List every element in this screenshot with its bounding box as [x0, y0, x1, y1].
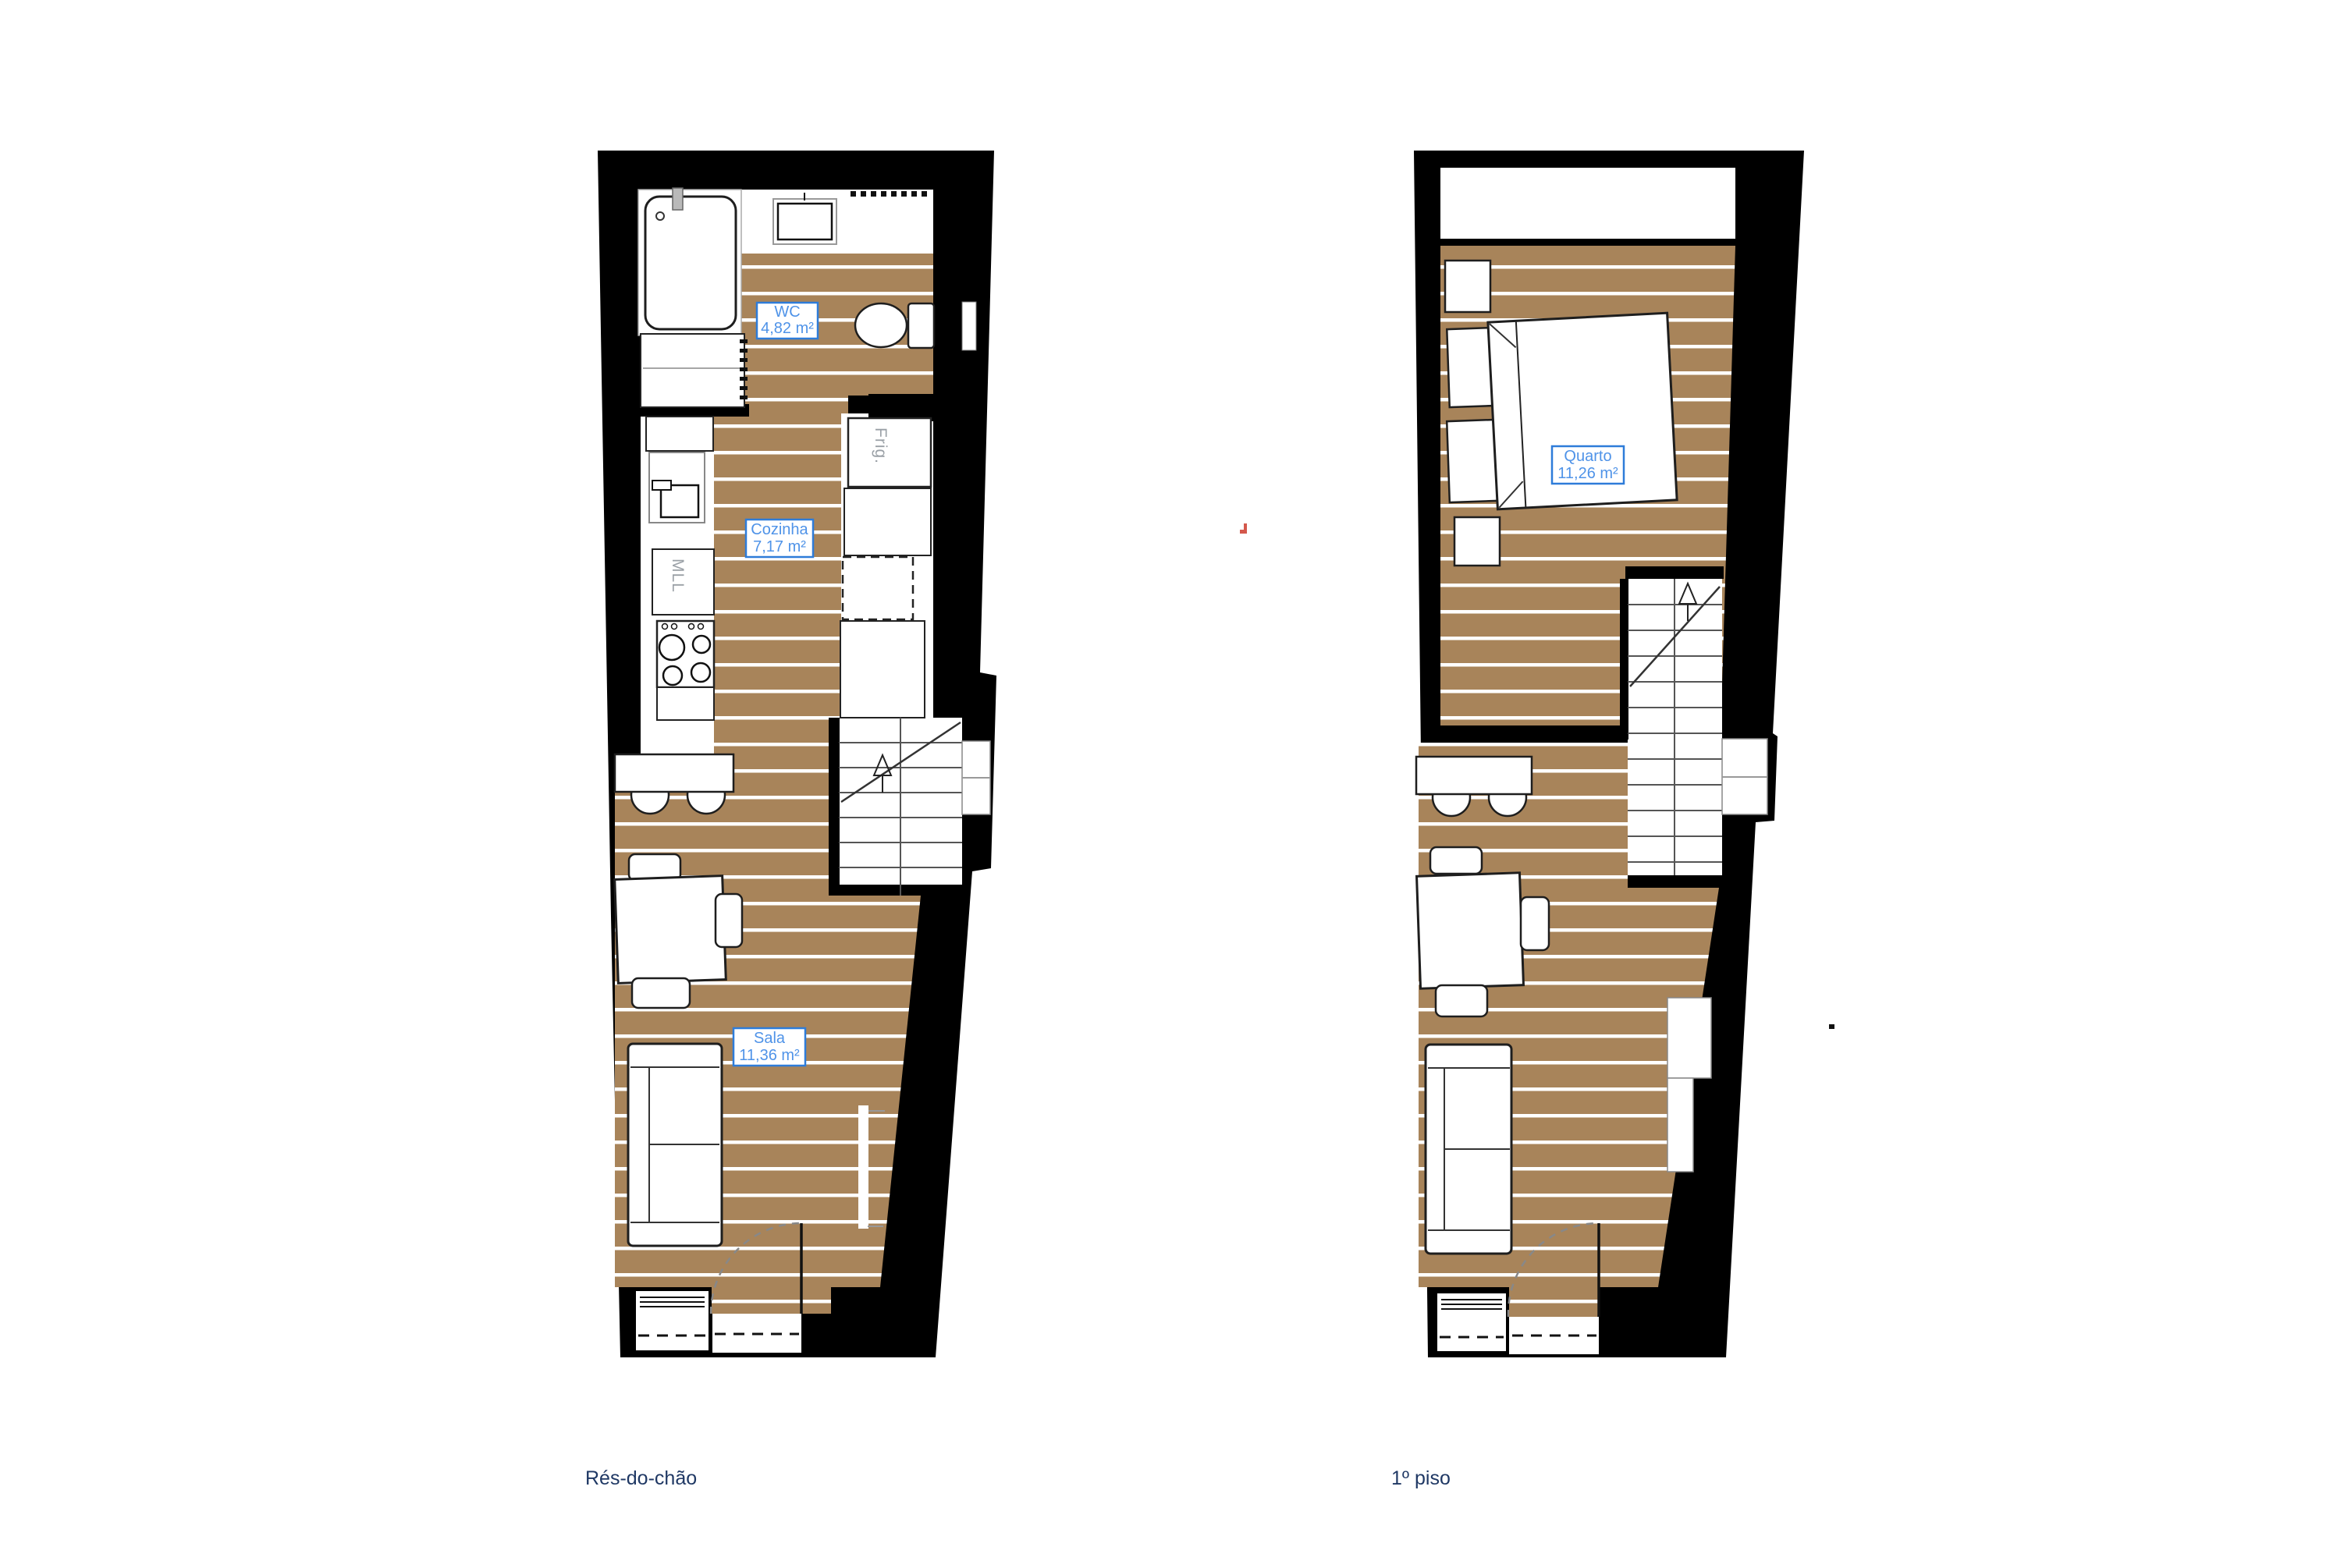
- sofa: [1426, 1045, 1511, 1254]
- stairwell-zone: [829, 718, 962, 896]
- cozinha-room-label: Cozinha 7,17 m²: [746, 520, 813, 557]
- kitchen-counter: [646, 417, 713, 451]
- under-stair-wall: [1628, 875, 1722, 888]
- door-threshold: [1509, 1317, 1599, 1354]
- wc-room-area: 4,82 m²: [761, 320, 814, 337]
- ground-floor-plan: MLL Frig.: [598, 151, 996, 1357]
- small-black-mark: [1829, 1024, 1834, 1029]
- stair-side-wall: [829, 718, 840, 896]
- bedroom-divider-wall: [1440, 725, 1625, 743]
- stair-landing: [962, 741, 990, 814]
- red-annotation-mark: [1240, 523, 1247, 534]
- quarto-room-label: Quarto 11,26 m²: [1552, 446, 1624, 484]
- kitchen-counter-right-low: [840, 621, 925, 718]
- dining-chair: [1430, 847, 1482, 874]
- first-floor-caption: 1º piso: [1391, 1467, 1451, 1489]
- wc-room-name: WC: [774, 303, 800, 321]
- stair-side-wall: [1620, 579, 1628, 740]
- dining-chair: [716, 894, 742, 947]
- washing-machine-label: MLL: [669, 559, 687, 593]
- washbasin: [773, 193, 836, 244]
- dining-chair: [1521, 897, 1549, 950]
- kitchen-sink: [649, 452, 705, 523]
- dining-chair: [632, 978, 690, 1008]
- washing-machine: MLL: [652, 549, 714, 615]
- dining-chair: [1436, 985, 1487, 1016]
- kitchen-counter-right: [844, 488, 931, 555]
- sala-room-area: 11,36 m²: [739, 1047, 800, 1064]
- stair-landing: [1722, 739, 1767, 814]
- bathtub: [638, 188, 741, 335]
- window-threshold: [636, 1291, 709, 1350]
- balcony-edge-line: [1440, 239, 1735, 246]
- first-floor-plan: Quarto 11,26 m²: [1414, 151, 1804, 1357]
- bedroom-cabinet: [1445, 261, 1490, 312]
- sala-room-label: Sala 11,36 m²: [733, 1028, 805, 1066]
- cozinha-room-area: 7,17 m²: [753, 538, 806, 555]
- sala-room-name: Sala: [754, 1030, 786, 1047]
- quarto-room-area: 11,26 m²: [1557, 465, 1618, 482]
- stove: [657, 621, 714, 687]
- kitchen-floor: [714, 413, 848, 791]
- dining-table: [615, 876, 726, 984]
- stairwell-top-wall: [1625, 566, 1724, 579]
- door-threshold: [712, 1314, 801, 1353]
- cozinha-room-name: Cozinha: [751, 521, 808, 538]
- sofa: [628, 1044, 722, 1246]
- floor-plan-sheet: MLL Frig.: [0, 0, 2344, 1568]
- quarto-room-name: Quarto: [1564, 448, 1611, 465]
- wc-room-label: WC 4,82 m²: [757, 303, 818, 339]
- ground-floor-caption: Rés-do-chão: [585, 1467, 697, 1489]
- floor-plan-drawing: MLL Frig.: [0, 0, 2344, 1568]
- kitchen-counter-low: [657, 687, 714, 720]
- dining-table: [1417, 873, 1524, 989]
- window-threshold: [1437, 1293, 1506, 1351]
- nightstand: [1447, 420, 1498, 502]
- built-in-appliance-dashed: [843, 557, 913, 619]
- fridge: Frig.: [848, 418, 931, 487]
- balcony-strip: [1440, 168, 1735, 240]
- fridge-label: Frig.: [872, 427, 890, 464]
- bath-cabinet: [641, 334, 744, 407]
- bedroom-cabinet-low: [1454, 517, 1500, 566]
